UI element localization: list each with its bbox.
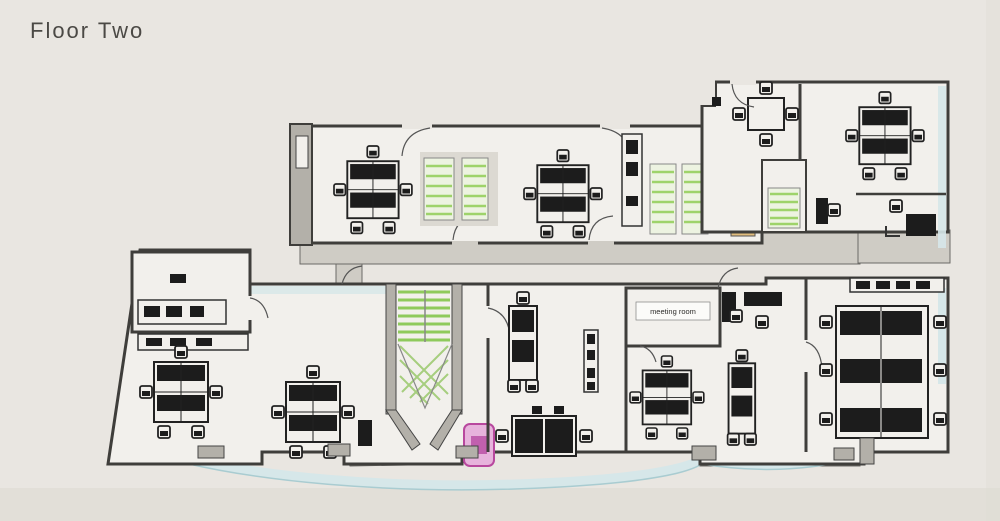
kitchen-room (132, 252, 268, 332)
door-opening (247, 296, 253, 320)
cabinet-strip-top-wing (622, 134, 642, 226)
floor-plan-drawing: Floor Two (0, 0, 1000, 521)
meeting-room-label: meeting room (650, 307, 696, 316)
shelving-green-west (420, 152, 498, 226)
top-wing (290, 122, 762, 246)
desk-cluster (728, 350, 757, 445)
photo-shading-right (986, 0, 1000, 521)
page-title: Floor Two (30, 18, 144, 43)
glazing-strip-mid (240, 286, 390, 294)
photo-shading-bottom (0, 488, 1000, 521)
floor-plan-page: Floor Two (0, 0, 1000, 521)
wall-pier (712, 97, 721, 106)
stair-treads (398, 292, 450, 340)
wall-niche (296, 136, 308, 168)
glazing-strip-northeast (938, 86, 946, 248)
desk (358, 420, 372, 446)
cabinet-row-left (138, 334, 248, 350)
cabinet-row-right (850, 278, 944, 292)
cabinet-strip (584, 330, 598, 392)
kitchen-appliance (170, 274, 186, 283)
desk-cluster (508, 292, 538, 392)
shelf-room (762, 160, 806, 232)
desk-cluster-six (820, 306, 946, 438)
top-right-wing (700, 79, 948, 248)
